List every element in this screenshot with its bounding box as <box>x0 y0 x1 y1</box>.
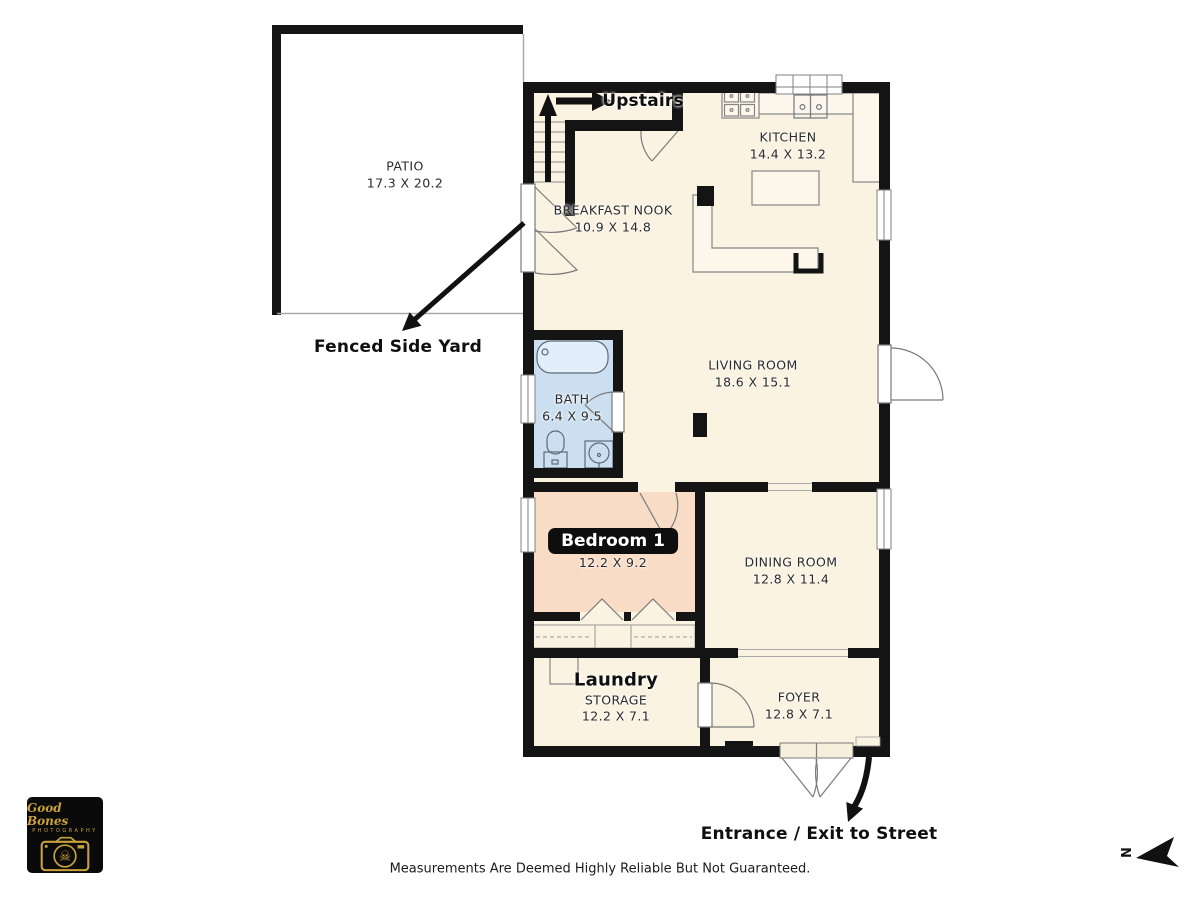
room-label-laundry: Laundry STORAGE 12.2 X 7.1 <box>574 669 658 726</box>
living-window-right <box>877 190 891 240</box>
room-subtitle: STORAGE <box>574 692 658 709</box>
room-label-kitchen: KITCHEN 14.4 X 13.2 <box>750 130 827 163</box>
disclaimer-text: Measurements Are Deemed Highly Reliable … <box>390 862 811 877</box>
side-yard-arrow-icon <box>402 223 524 331</box>
room-dims: 10.9 X 14.8 <box>554 219 673 236</box>
room-dims: 6.4 X 9.5 <box>542 408 602 425</box>
logo-subtitle: PHOTOGRAPHY <box>32 829 98 834</box>
upstairs-label: Upstairs <box>602 91 684 111</box>
room-name: BREAKFAST NOOK <box>554 203 673 220</box>
room-name: BATH <box>542 392 602 409</box>
room-name: PATIO <box>367 159 444 176</box>
kitchen-window <box>776 75 842 94</box>
room-label-dining-room: DINING ROOM 12.8 X 11.4 <box>745 555 838 588</box>
room-dims: 18.6 X 15.1 <box>708 374 797 391</box>
skull-crossbones-icon: ☠ <box>59 849 72 865</box>
floorplan-page: N PATIO 17.3 X 20.2 Upstairs KITCHEN 14.… <box>0 0 1200 900</box>
room-name: FOYER <box>765 690 833 707</box>
fenced-side-yard-label: Fenced Side Yard <box>314 337 482 357</box>
chimney-block <box>697 186 714 206</box>
logo-name: Good Bones <box>27 802 103 828</box>
bedroom-window-left <box>521 498 535 552</box>
room-dims: 12.2 X 7.1 <box>574 709 658 726</box>
corner-step <box>856 737 880 746</box>
room-name: LIVING ROOM <box>708 358 797 375</box>
bath-window-left <box>521 375 535 423</box>
bathtub <box>537 341 608 373</box>
entrance-exit-label: Entrance / Exit to Street <box>701 824 938 844</box>
fireplace-column <box>693 413 707 437</box>
room-name: KITCHEN <box>750 130 827 147</box>
room-name: Laundry <box>574 669 658 693</box>
room-dims: 14.4 X 13.2 <box>750 146 827 163</box>
floorplan-drawing: N <box>0 0 1200 900</box>
front-double-door <box>780 743 853 797</box>
entrance-arrow-icon <box>846 757 869 822</box>
photography-logo: Good Bones PHOTOGRAPHY ☠ <box>27 797 103 873</box>
room-dims: 17.3 X 20.2 <box>367 175 444 192</box>
room-label-foyer: FOYER 12.8 X 7.1 <box>765 690 833 723</box>
room-label-patio: PATIO 17.3 X 20.2 <box>367 159 444 192</box>
side-exit-door <box>878 345 943 403</box>
north-letter: N <box>1120 847 1135 858</box>
room-label-living-room: LIVING ROOM 18.6 X 15.1 <box>708 358 797 391</box>
bedroom-1-badge: Bedroom 1 <box>548 528 678 554</box>
room-name: DINING ROOM <box>745 555 838 572</box>
dining-window-right <box>877 489 891 549</box>
room-dims-bedroom-1: 12.2 X 9.2 <box>579 555 647 572</box>
room-label-bath: BATH 6.4 X 9.5 <box>542 392 602 425</box>
room-dims: 12.8 X 11.4 <box>745 571 838 588</box>
north-arrow-icon: N <box>1120 837 1179 867</box>
camera-icon: ☠ <box>34 836 96 873</box>
room-dims: 12.8 X 7.1 <box>765 706 833 723</box>
room-label-breakfast-nook: BREAKFAST NOOK 10.9 X 14.8 <box>554 203 673 236</box>
